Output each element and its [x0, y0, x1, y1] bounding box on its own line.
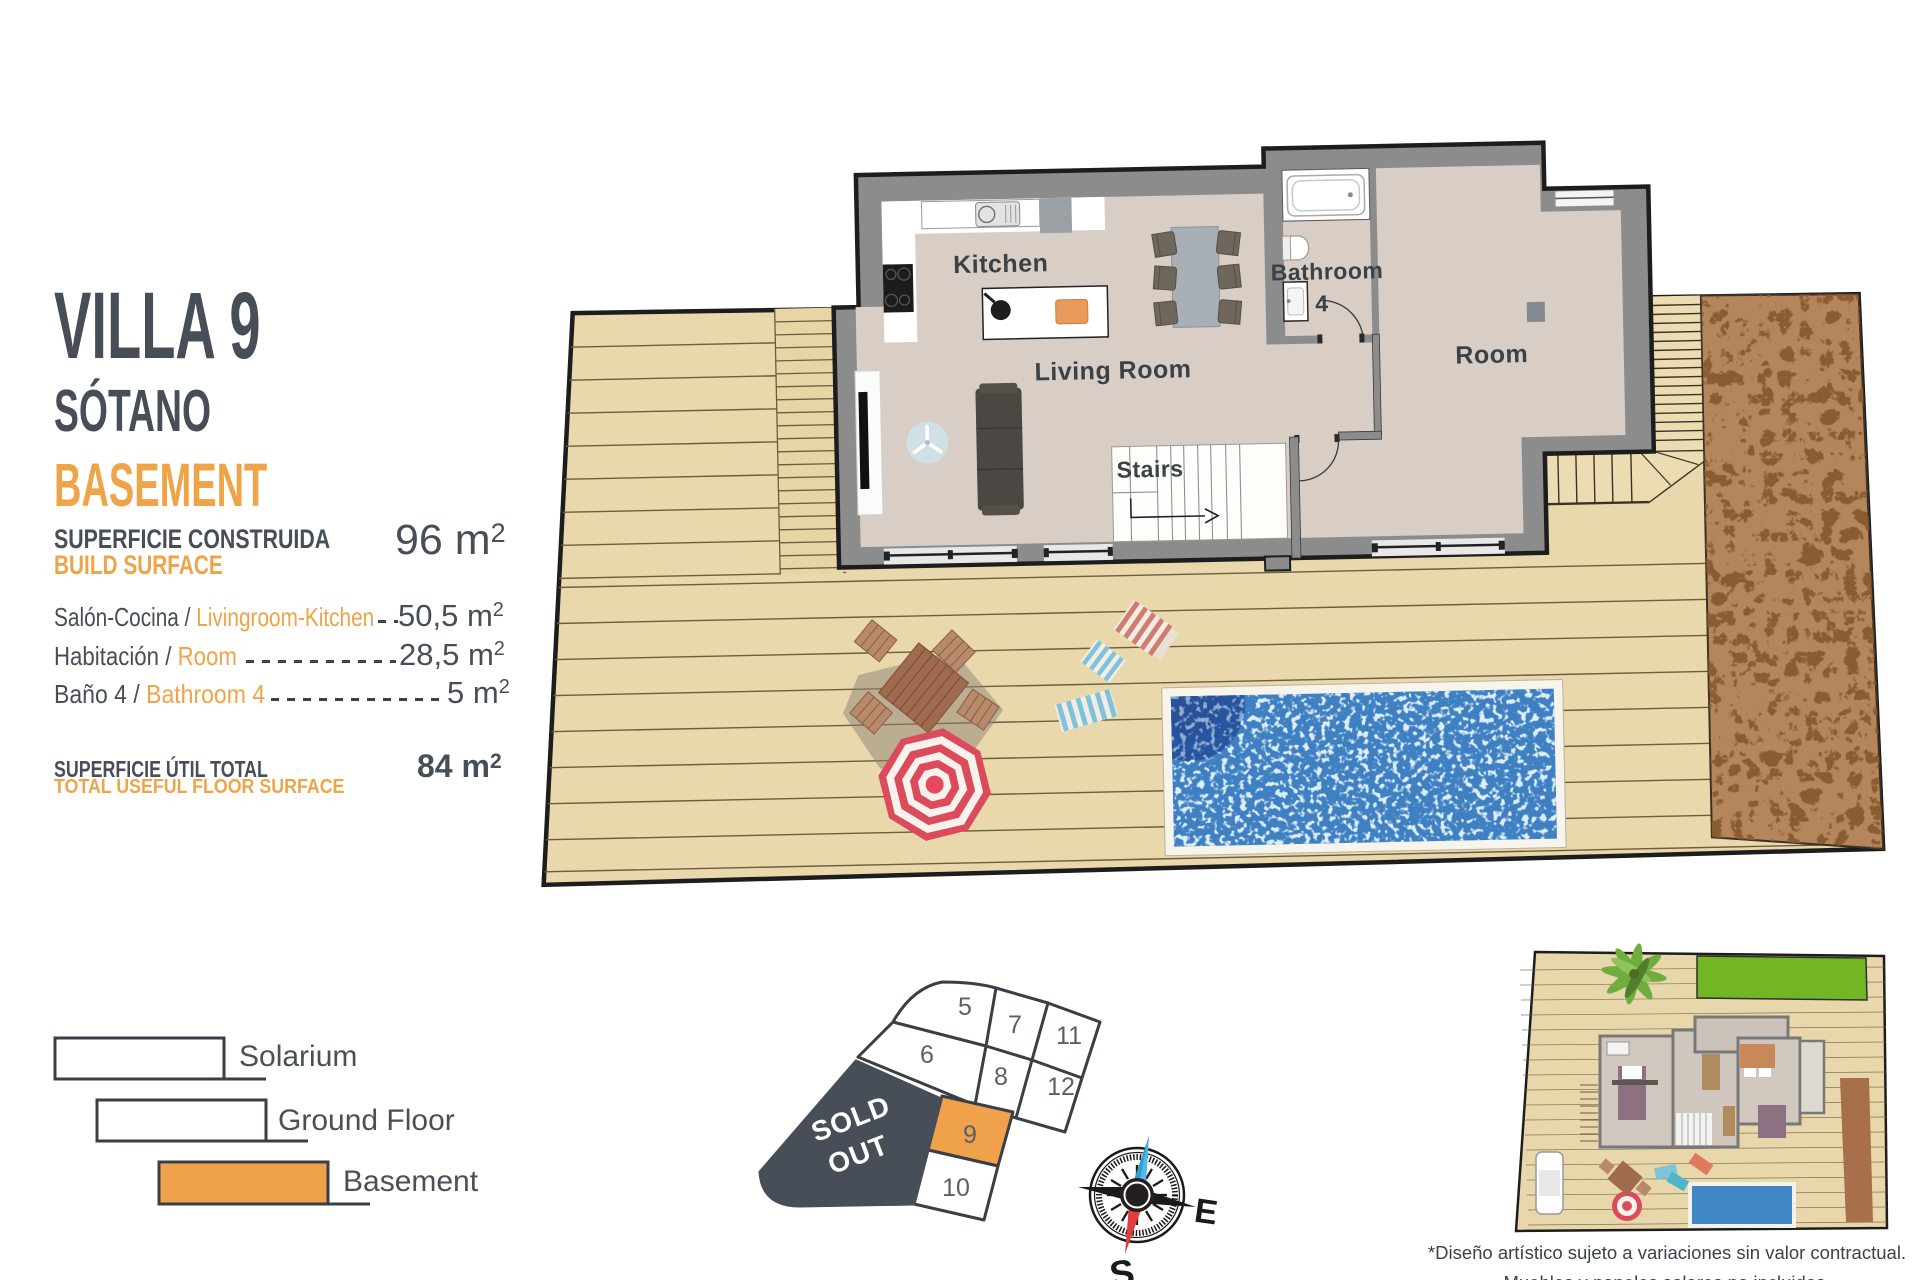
svg-text:8: 8 [994, 1063, 1008, 1091]
svg-text:Living Room: Living Room [1034, 355, 1191, 386]
svg-text:4: 4 [1315, 290, 1329, 316]
svg-text:5: 5 [958, 993, 972, 1021]
svg-text:12: 12 [1047, 1073, 1075, 1101]
svg-text:10: 10 [942, 1174, 970, 1202]
svg-text:Room: Room [1455, 340, 1528, 370]
svg-text:9: 9 [963, 1121, 977, 1149]
svg-text:Kitchen: Kitchen [953, 249, 1049, 279]
svg-text:7: 7 [1008, 1011, 1022, 1039]
svg-text:*Diseño artístico sujeto a var: *Diseño artístico sujeto a variaciones s… [1428, 1242, 1906, 1263]
svg-text:E: E [1192, 1192, 1220, 1233]
svg-text:Stairs: Stairs [1116, 455, 1183, 482]
svg-text:S: S [1107, 1251, 1137, 1280]
svg-text:Muebles y paneles solares no i: Muebles y paneles solares no incluidos. [1503, 1272, 1830, 1280]
svg-text:Bathroom: Bathroom [1270, 257, 1383, 285]
svg-text:11: 11 [1056, 1022, 1082, 1050]
svg-text:6: 6 [920, 1041, 934, 1069]
